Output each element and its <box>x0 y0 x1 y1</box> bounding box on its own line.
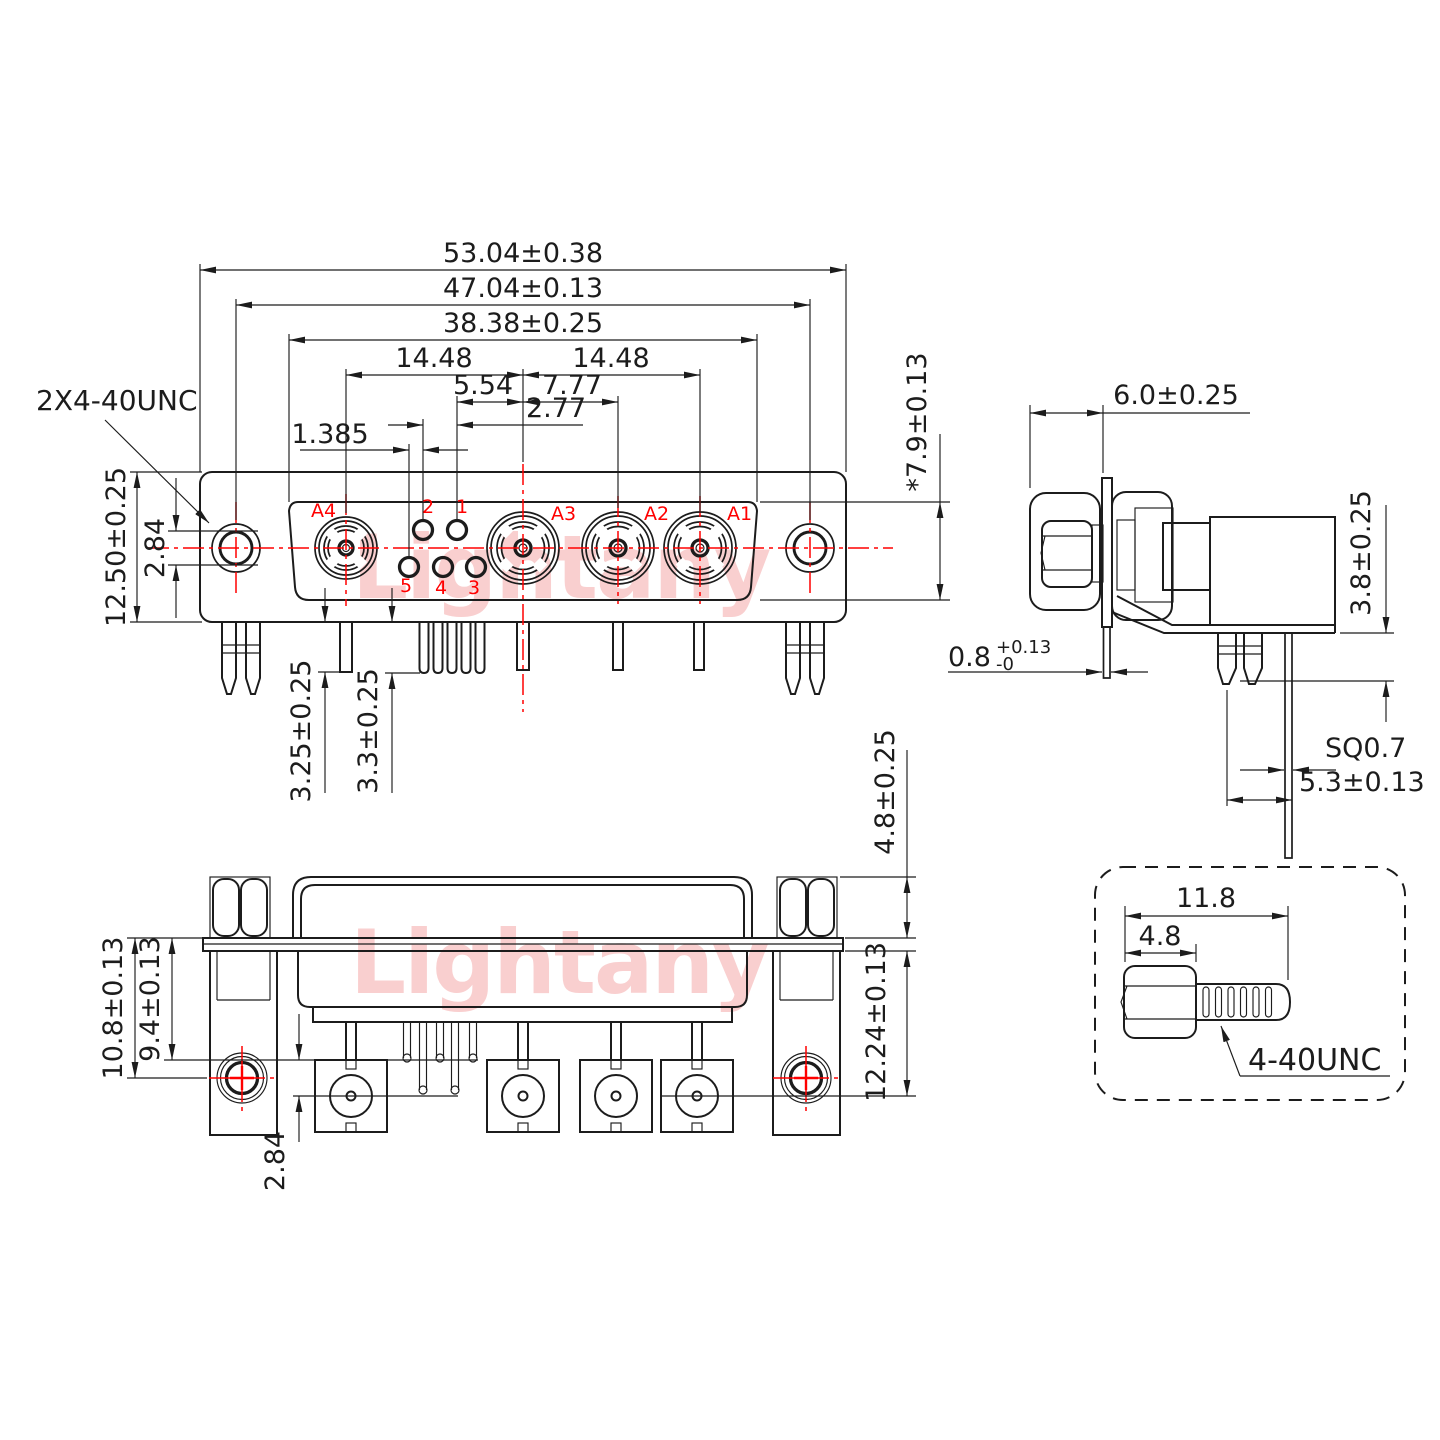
dim-label-4-8-screw: 4.8 <box>1139 921 1182 952</box>
bottom-hex-standoff-left <box>210 877 270 938</box>
side-coupling-nut <box>1030 493 1103 610</box>
dim-label-0-8: 0.8 +0.13 -0 <box>948 637 1056 675</box>
dim-label-5-3: 5.3±0.13 <box>1299 767 1425 798</box>
contact-label-a4: A4 <box>311 500 336 522</box>
screw-hex-body <box>1121 966 1196 1038</box>
front-mounting-fork-right <box>786 622 824 694</box>
dim-label-12-50: 12.50±0.25 <box>101 467 132 627</box>
contact-label-a2: A2 <box>644 503 669 525</box>
dim-label-sq0-7: SQ0.7 <box>1325 733 1406 764</box>
dim-label-1-385: 1.385 <box>291 419 368 450</box>
dim-label-11-8: 11.8 <box>1176 883 1236 914</box>
bottom-mcx-blocks <box>315 1022 733 1132</box>
dim-0-8-minus-tol: -0 <box>996 654 1014 675</box>
dim-0-8-value: 0.8 <box>948 642 991 673</box>
dim-label-2-84-front: 2.84 <box>140 518 171 578</box>
pin-label-4: 4 <box>435 577 447 599</box>
dim-label-3-25: 3.25±0.25 <box>286 660 317 803</box>
bottom-jack-block-left <box>210 951 277 1135</box>
side-board-lock <box>1218 633 1262 684</box>
dim-label-38-38: 38.38±0.25 <box>443 308 603 339</box>
dim-label-6-0: 6.0±0.25 <box>1113 380 1239 411</box>
connector-engineering-drawing: Lightany Lightany <box>0 0 1440 1440</box>
contact-label-a1: A1 <box>727 503 752 525</box>
dim-label-2-84-bottom: 2.84 <box>260 1131 291 1191</box>
dim-label-12-24: 12.24±0.13 <box>861 942 892 1102</box>
pin-label-5: 5 <box>400 575 412 597</box>
side-connector-body <box>1112 492 1335 625</box>
front-contact-legs <box>340 622 704 673</box>
pin-label-1: 1 <box>456 496 468 518</box>
dim-label-2-77: 2.77 <box>526 393 586 424</box>
dim-label-7-9: *7.9±0.13 <box>902 352 933 491</box>
dim-label-3-3: 3.3±0.25 <box>353 668 384 794</box>
screw-threaded-stud <box>1196 984 1290 1020</box>
thread-callout-label: 2X4-40UNC <box>36 384 198 417</box>
bottom-signal-wires <box>403 1022 477 1094</box>
dim-label-47-04: 47.04±0.13 <box>443 273 603 304</box>
drawing-canvas: Lightany Lightany <box>0 0 1440 1440</box>
dim-label-5-54: 5.54 <box>453 370 513 401</box>
pin-label-2: 2 <box>422 496 434 518</box>
pin-label-3: 3 <box>468 577 480 599</box>
bottom-hex-standoff-right <box>777 877 837 938</box>
front-mounting-fork-left <box>222 622 260 694</box>
screw-detail: 11.8 4.8 4-40UNC <box>1095 867 1405 1100</box>
dim-label-53-04: 53.04±0.38 <box>443 238 603 269</box>
dim-label-10-8: 10.8±0.13 <box>98 937 129 1080</box>
dim-label-4-8-bottom: 4.8±0.25 <box>870 729 901 855</box>
bottom-post-centerlines <box>209 1046 839 1112</box>
dim-label-3-8: 3.8±0.25 <box>1346 490 1377 616</box>
side-view: 6.0±0.25 3.8±0.25 0.8 +0.13 -0 SQ0.7 5.3… <box>948 380 1425 858</box>
side-square-pin <box>1285 633 1292 858</box>
dim-label-9-4: 9.4±0.13 <box>135 936 166 1062</box>
screw-thread-label: 4-40UNC <box>1248 1043 1381 1078</box>
watermark-bottom: Lightany <box>350 911 768 1014</box>
contact-label-a3: A3 <box>551 503 576 525</box>
